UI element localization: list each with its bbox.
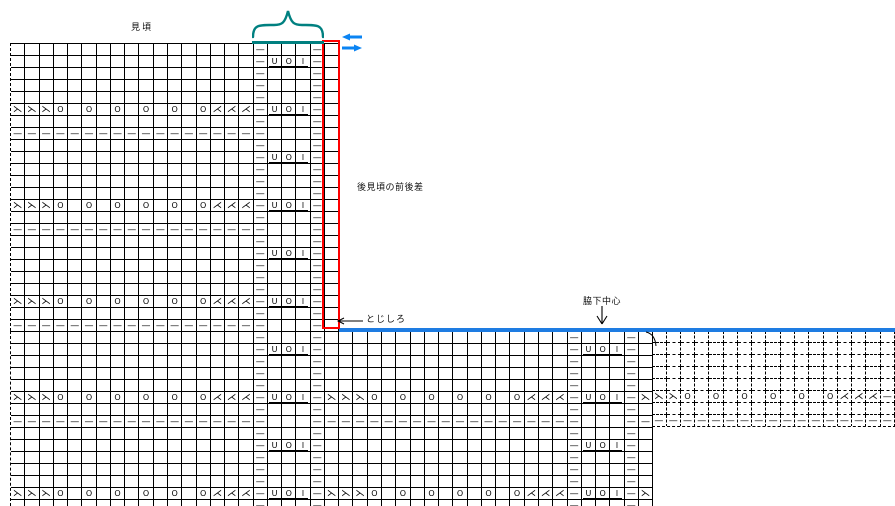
cell [40, 260, 54, 272]
purl-symbol: — [256, 332, 265, 344]
cell [225, 380, 239, 392]
brace-icon [252, 7, 324, 39]
cell: — [139, 128, 153, 140]
cell [125, 488, 139, 500]
cell [139, 92, 153, 104]
cell: ⋋ [25, 104, 39, 116]
cell [510, 356, 524, 368]
cell [139, 176, 153, 188]
cell [197, 404, 211, 416]
cell [766, 355, 780, 367]
cell [439, 500, 453, 506]
cell [510, 380, 524, 392]
cell [752, 391, 766, 403]
cell [496, 392, 510, 404]
cell [368, 500, 382, 506]
bobble-underline [269, 498, 308, 499]
cell [396, 428, 410, 440]
cell [68, 164, 82, 176]
purl-symbol: — [256, 296, 265, 308]
cell [525, 476, 539, 488]
yo-symbol: O [171, 200, 177, 212]
cell [382, 404, 396, 416]
cell [168, 356, 182, 368]
cell [197, 212, 211, 224]
purl-symbol: — [697, 415, 706, 427]
cell [596, 356, 610, 368]
cell: ⋌ [225, 296, 239, 308]
purl-symbol: — [84, 320, 93, 331]
cell [296, 284, 310, 296]
cell: — [125, 224, 139, 236]
cell [25, 248, 39, 260]
cell [268, 212, 282, 224]
cell [852, 403, 866, 415]
cell: ⋌ [539, 488, 553, 500]
cell [738, 367, 752, 379]
cell [139, 188, 153, 200]
cell [54, 44, 68, 56]
cell [225, 236, 239, 248]
cell [82, 272, 96, 284]
purl-symbol: — [470, 416, 479, 428]
cell [168, 308, 182, 320]
purl-symbol: — [13, 128, 22, 140]
purl-symbol: — [256, 68, 265, 80]
cell [296, 212, 310, 224]
cell [482, 368, 496, 380]
cell [296, 236, 310, 248]
cell [182, 44, 196, 56]
cell [596, 464, 610, 476]
purl-symbol: — [313, 356, 322, 368]
cell [40, 380, 54, 392]
cell: O [453, 392, 467, 404]
cell [553, 356, 567, 368]
purl-symbol: — [313, 68, 322, 80]
cell [97, 80, 111, 92]
cell [866, 355, 880, 367]
cell: — [254, 296, 268, 308]
yo-symbol: O [371, 488, 377, 500]
cell [111, 332, 125, 344]
cell [54, 404, 68, 416]
cell: — [54, 416, 68, 428]
cell [582, 368, 596, 380]
cell [125, 308, 139, 320]
purl-symbol: — [127, 320, 136, 331]
cell [496, 488, 510, 500]
cell: — [254, 452, 268, 464]
cell [54, 164, 68, 176]
purl-symbol: — [27, 320, 36, 331]
cell [54, 284, 68, 296]
cell [182, 428, 196, 440]
cell [25, 356, 39, 368]
cell [439, 368, 453, 380]
cell [339, 428, 353, 440]
purl-symbol: — [56, 320, 65, 331]
cell [809, 343, 823, 355]
purl-symbol: — [826, 415, 835, 427]
cell: — [82, 320, 96, 331]
cell [11, 140, 25, 152]
cell: — [239, 416, 253, 428]
cell [553, 440, 567, 452]
cell [411, 476, 425, 488]
cell [197, 272, 211, 284]
yo-symbol: O [741, 391, 747, 403]
cell [182, 188, 196, 200]
cell [553, 452, 567, 464]
cell [268, 500, 282, 506]
cell: — [254, 236, 268, 248]
cell: ⋋ [40, 488, 54, 500]
purl-symbol: — [70, 128, 79, 140]
cell [154, 296, 168, 308]
cell: — [254, 416, 268, 428]
cell [268, 128, 282, 140]
purl-symbol: — [313, 212, 322, 224]
cell [40, 368, 54, 380]
cell [881, 379, 895, 391]
purl-symbol: — [570, 368, 579, 380]
cell: — [11, 320, 25, 331]
cell [268, 260, 282, 272]
cell [411, 380, 425, 392]
cell [325, 344, 339, 356]
cell: — [254, 356, 268, 368]
cell [68, 344, 82, 356]
cell [382, 476, 396, 488]
purl-symbol: — [227, 224, 236, 236]
purl-symbol: — [184, 224, 193, 236]
cell [139, 140, 153, 152]
cell [468, 488, 482, 500]
cell: — [568, 332, 582, 344]
cell [239, 68, 253, 80]
purl-symbol: — [541, 416, 550, 428]
cell [25, 116, 39, 128]
purl-symbol: — [70, 320, 79, 331]
cell [282, 272, 296, 284]
yo-symbol: O [200, 200, 206, 212]
cell [168, 260, 182, 272]
cell [97, 140, 111, 152]
cell: — [254, 404, 268, 416]
cell [282, 332, 296, 344]
cell: — [139, 320, 153, 331]
purl-symbol: — [712, 415, 721, 427]
cell [824, 331, 838, 343]
cell [211, 44, 225, 56]
cell [396, 440, 410, 452]
cell [82, 68, 96, 80]
cell [97, 356, 111, 368]
cell [68, 308, 82, 320]
cell [866, 331, 880, 343]
cell: O [54, 200, 68, 212]
cell [582, 332, 596, 344]
cell [97, 104, 111, 116]
cell: ⋌ [239, 488, 253, 500]
purl-symbol: — [627, 428, 636, 440]
cell: — [425, 416, 439, 428]
cell: — [625, 344, 639, 356]
cell: — [254, 320, 268, 331]
yo-symbol: O [86, 392, 92, 404]
purl-symbol: — [256, 188, 265, 200]
cell [866, 379, 880, 391]
purl-symbol: — [570, 452, 579, 464]
cell: — [539, 416, 553, 428]
cell: O [111, 104, 125, 116]
purl-symbol: — [797, 415, 806, 427]
cell [125, 68, 139, 80]
purl-symbol: — [113, 320, 122, 331]
purl-symbol: — [13, 224, 22, 236]
cell [339, 380, 353, 392]
cell: ⋌ [225, 104, 239, 116]
cell: — [82, 416, 96, 428]
cell [282, 128, 296, 140]
cell [97, 164, 111, 176]
cell [239, 404, 253, 416]
cell [111, 404, 125, 416]
cell [496, 368, 510, 380]
cell [11, 164, 25, 176]
cell [139, 476, 153, 488]
cell [852, 343, 866, 355]
cell [510, 332, 524, 344]
cell: — [154, 416, 168, 428]
purl-symbol: — [313, 416, 322, 428]
cell: O [54, 296, 68, 308]
cell [468, 368, 482, 380]
cell: — [40, 128, 54, 140]
yo-symbol: O [143, 296, 149, 308]
cell [11, 284, 25, 296]
yo-symbol: O [171, 488, 177, 500]
cell [68, 440, 82, 452]
cell [197, 332, 211, 344]
cell [425, 368, 439, 380]
purl-symbol: — [313, 128, 322, 140]
purl-symbol: — [227, 320, 236, 331]
k2tog-symbol: ⋌ [227, 392, 237, 404]
cell [268, 224, 282, 236]
cell [211, 164, 225, 176]
cell [82, 368, 96, 380]
purl-symbol: — [313, 488, 322, 500]
cell [211, 248, 225, 260]
cell: ⋋ [25, 296, 39, 308]
cell: ⋌ [553, 392, 567, 404]
cell [168, 404, 182, 416]
cell [268, 176, 282, 188]
purl-symbol: — [113, 128, 122, 140]
purl-symbol: — [256, 236, 265, 248]
cell [382, 452, 396, 464]
cell [154, 380, 168, 392]
ssk-symbol: ⋋ [341, 392, 351, 404]
cell [82, 308, 96, 320]
cell: O [396, 488, 410, 500]
cell [211, 140, 225, 152]
cell [40, 116, 54, 128]
cell [439, 356, 453, 368]
cell [111, 284, 125, 296]
cell [296, 380, 310, 392]
cell: — [239, 224, 253, 236]
purl-symbol: — [256, 152, 265, 164]
purl-symbol: — [627, 356, 636, 368]
cell [154, 428, 168, 440]
purl-symbol: — [241, 224, 250, 236]
purl-symbol: — [313, 428, 322, 440]
cell: — [568, 368, 582, 380]
cell [282, 140, 296, 152]
cell [239, 44, 253, 56]
cell [411, 344, 425, 356]
purl-symbol: — [455, 416, 464, 428]
cell [724, 403, 738, 415]
cell [368, 440, 382, 452]
cell [197, 380, 211, 392]
cell [582, 356, 596, 368]
cell [82, 440, 96, 452]
cell [610, 356, 624, 368]
purl-symbol: — [840, 415, 849, 427]
cell [353, 464, 367, 476]
cell [268, 404, 282, 416]
cell [182, 440, 196, 452]
purl-symbol: — [484, 416, 493, 428]
cell: — [339, 416, 353, 428]
bobble-underline [583, 402, 622, 403]
cell: O [368, 392, 382, 404]
cell [596, 500, 610, 506]
cell [11, 272, 25, 284]
cell [111, 188, 125, 200]
cell [681, 355, 695, 367]
cell: — [311, 476, 325, 488]
bobble-underline [269, 258, 308, 259]
cell [838, 355, 852, 367]
cell [125, 272, 139, 284]
ssk-symbol: ⋋ [27, 488, 37, 500]
cell [25, 332, 39, 344]
cell [97, 272, 111, 284]
cell: ⋌ [211, 488, 225, 500]
cell: O [82, 296, 96, 308]
cell [225, 260, 239, 272]
cell [40, 272, 54, 284]
cell: ⋋ [11, 200, 25, 212]
purl-symbol: — [213, 416, 222, 428]
cell: — [568, 392, 582, 404]
cell [40, 140, 54, 152]
cell: — [54, 128, 68, 140]
bobble-underline [269, 162, 308, 163]
cell [25, 428, 39, 440]
cell [54, 272, 68, 284]
cell [239, 284, 253, 296]
cell [582, 452, 596, 464]
yo-symbol: O [200, 392, 206, 404]
cell [296, 260, 310, 272]
cell [40, 176, 54, 188]
cell [125, 380, 139, 392]
purl-symbol: — [327, 416, 336, 428]
cell [239, 140, 253, 152]
cell [325, 428, 339, 440]
cell [268, 380, 282, 392]
cell [525, 344, 539, 356]
cell: — [182, 224, 196, 236]
cell [268, 356, 282, 368]
cell [154, 464, 168, 476]
yo-symbol: O [171, 296, 177, 308]
ssk-symbol: ⋋ [13, 392, 23, 404]
cell [197, 284, 211, 296]
cell [667, 379, 681, 391]
cell [282, 416, 296, 428]
cell: ⋋ [40, 392, 54, 404]
cell: — [40, 416, 54, 428]
cell [154, 476, 168, 488]
yo-symbol: O [514, 488, 520, 500]
k2tog-symbol: ⋌ [213, 392, 223, 404]
cell [54, 176, 68, 188]
cell [154, 440, 168, 452]
cell [197, 440, 211, 452]
cell: — [254, 380, 268, 392]
cell [168, 236, 182, 248]
cell [211, 284, 225, 296]
purl-symbol: — [256, 308, 265, 320]
bobble-underline [269, 354, 308, 355]
cell [168, 440, 182, 452]
cell [468, 380, 482, 392]
cell [852, 331, 866, 343]
purl-symbol: — [256, 248, 265, 260]
cell [97, 332, 111, 344]
cell: — [652, 415, 666, 427]
cell: — [568, 440, 582, 452]
cell: — [225, 224, 239, 236]
cell: O [425, 488, 439, 500]
cell: — [568, 452, 582, 464]
cell: — [311, 416, 325, 428]
cell [781, 343, 795, 355]
cell [139, 500, 153, 506]
cell [525, 440, 539, 452]
cell [182, 236, 196, 248]
k2tog-symbol: ⋌ [555, 392, 565, 404]
cell [496, 356, 510, 368]
cell: — [40, 320, 54, 331]
cell [482, 344, 496, 356]
yo-symbol: O [827, 391, 833, 403]
purl-symbol: — [256, 80, 265, 92]
cell [82, 152, 96, 164]
cell [182, 152, 196, 164]
cell [54, 116, 68, 128]
cell [139, 428, 153, 440]
ssk-symbol: ⋋ [327, 488, 337, 500]
cell: — [254, 44, 268, 56]
